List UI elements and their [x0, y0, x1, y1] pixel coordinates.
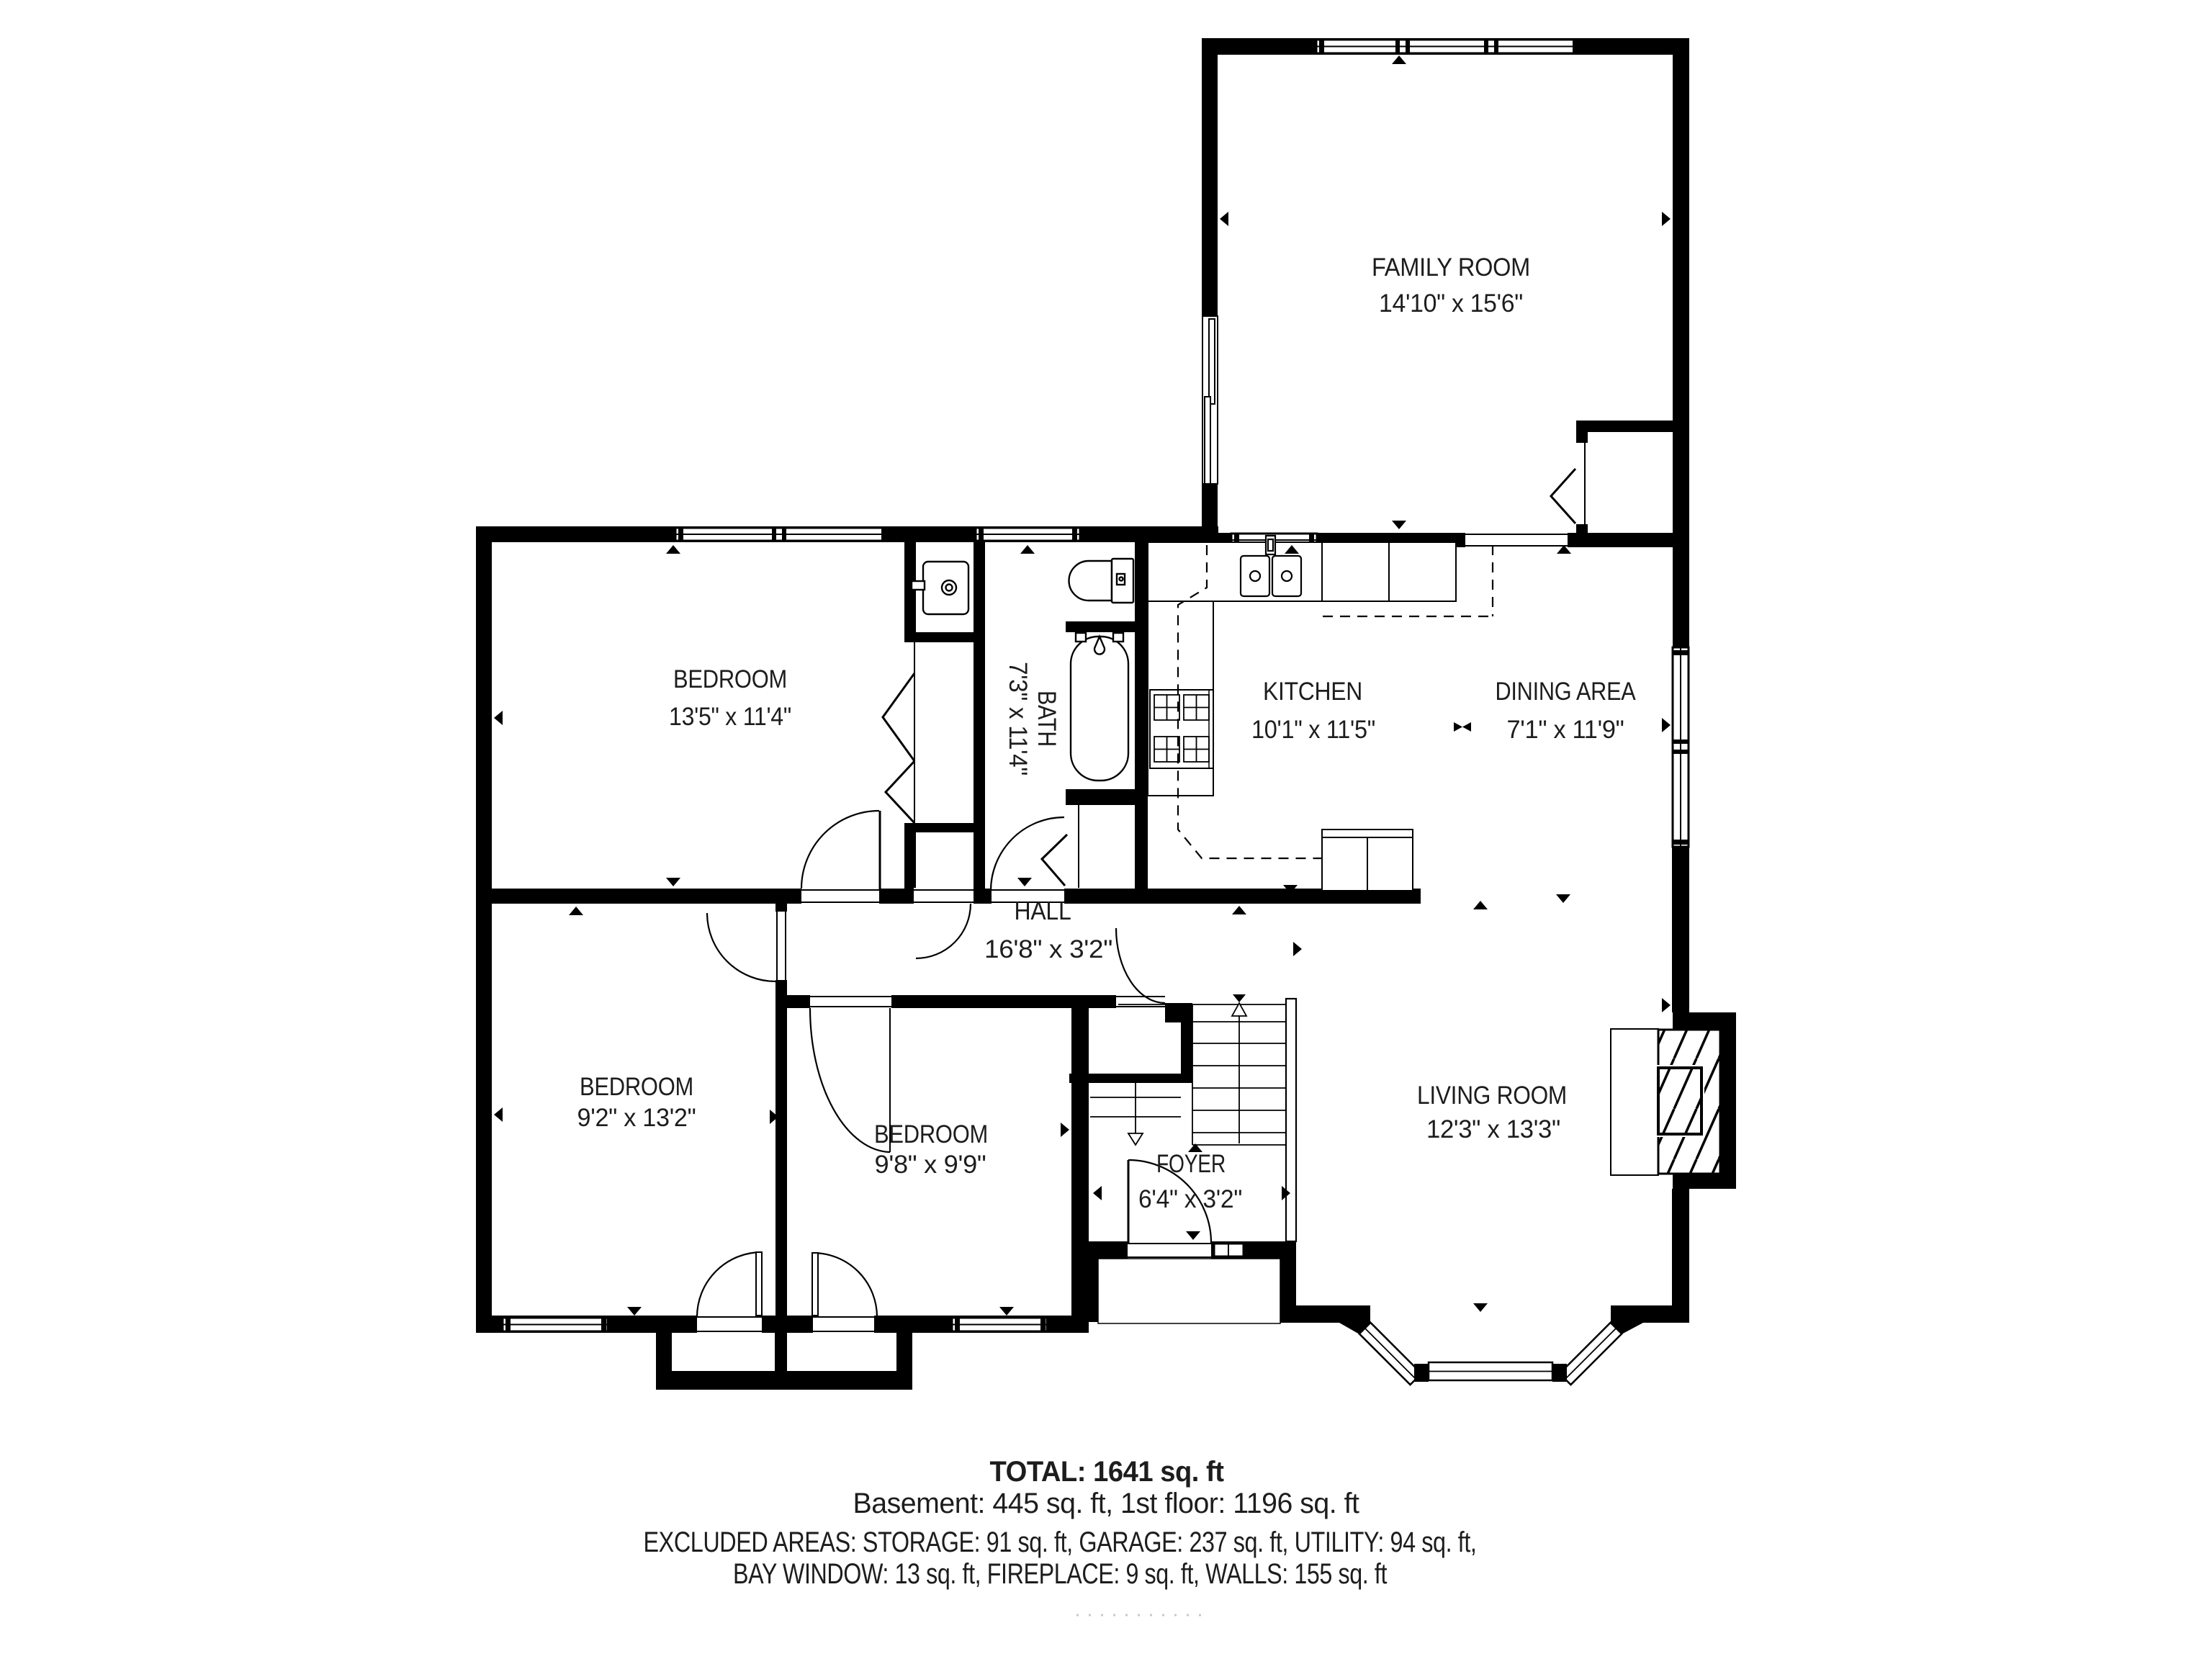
svg-text:BEDROOM: BEDROOM	[673, 665, 787, 693]
svg-text:7'1" x 11'9": 7'1" x 11'9"	[1507, 716, 1624, 744]
svg-text:12'3" x 13'3": 12'3" x 13'3"	[1426, 1115, 1560, 1143]
svg-text:9'8" x 9'9": 9'8" x 9'9"	[875, 1151, 986, 1179]
svg-text:10'1" x 11'5": 10'1" x 11'5"	[1251, 716, 1375, 744]
svg-text:BEDROOM: BEDROOM	[580, 1073, 693, 1101]
svg-text:BAY WINDOW: 13 sq. ft, FIREPLA: BAY WINDOW: 13 sq. ft, FIREPLACE: 9 sq. …	[733, 1558, 1387, 1590]
svg-text:EXCLUDED AREAS: STORAGE: 91 sq: EXCLUDED AREAS: STORAGE: 91 sq. ft, GARA…	[644, 1527, 1477, 1558]
svg-text:BATH: BATH	[1033, 691, 1061, 747]
svg-text:TOTAL: 1641 sq. ft: TOTAL: 1641 sq. ft	[990, 1456, 1224, 1488]
svg-text:Basement: 445 sq. ft, 1st floo: Basement: 445 sq. ft, 1st floor: 1196 sq…	[853, 1488, 1359, 1519]
svg-text:BEDROOM: BEDROOM	[874, 1120, 988, 1148]
svg-text:9'2" x 13'2": 9'2" x 13'2"	[577, 1104, 696, 1132]
svg-text:FAMILY ROOM: FAMILY ROOM	[1372, 253, 1530, 282]
svg-text:6'4" x 3'2": 6'4" x 3'2"	[1138, 1185, 1242, 1213]
svg-text:7'3" x 11'4": 7'3" x 11'4"	[1004, 662, 1032, 775]
svg-text:LIVING ROOM: LIVING ROOM	[1417, 1082, 1567, 1110]
svg-text:FOYER: FOYER	[1156, 1150, 1226, 1178]
svg-text:HALL: HALL	[1015, 897, 1071, 925]
svg-text:13'5" x 11'4": 13'5" x 11'4"	[669, 703, 791, 731]
svg-text:KITCHEN: KITCHEN	[1263, 678, 1362, 706]
svg-text:16'8" x 3'2": 16'8" x 3'2"	[984, 935, 1112, 963]
svg-text:14'10" x 15'6": 14'10" x 15'6"	[1379, 289, 1523, 318]
svg-text:DINING AREA: DINING AREA	[1496, 678, 1637, 706]
